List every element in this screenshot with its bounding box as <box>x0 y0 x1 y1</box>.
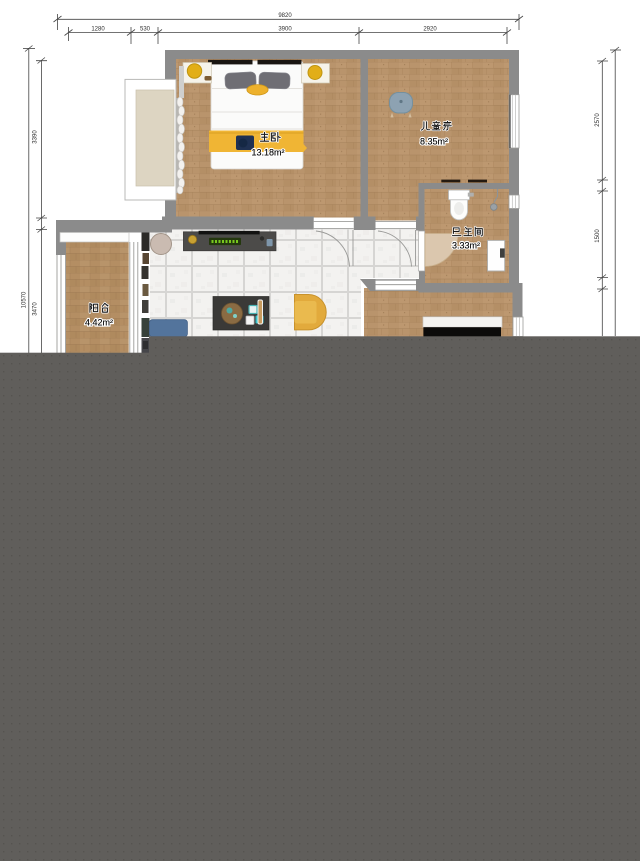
svg-text:2920: 2920 <box>423 27 437 33</box>
svg-text:3.33m²: 3.33m² <box>452 241 480 251</box>
svg-text:3470: 3470 <box>33 302 39 316</box>
svg-text:3390: 3390 <box>33 130 39 144</box>
svg-text:2570: 2570 <box>595 113 601 127</box>
svg-text:10570: 10570 <box>22 291 28 308</box>
svg-text:1280: 1280 <box>91 27 105 33</box>
svg-text:8.35m²: 8.35m² <box>420 137 448 147</box>
svg-text:4.42m²: 4.42m² <box>85 318 113 328</box>
svg-text:13.18m²: 13.18m² <box>251 148 284 158</box>
svg-text:1500: 1500 <box>595 229 601 243</box>
svg-text:3900: 3900 <box>278 27 292 33</box>
svg-text:9820: 9820 <box>278 13 292 19</box>
svg-text:530: 530 <box>140 27 151 33</box>
